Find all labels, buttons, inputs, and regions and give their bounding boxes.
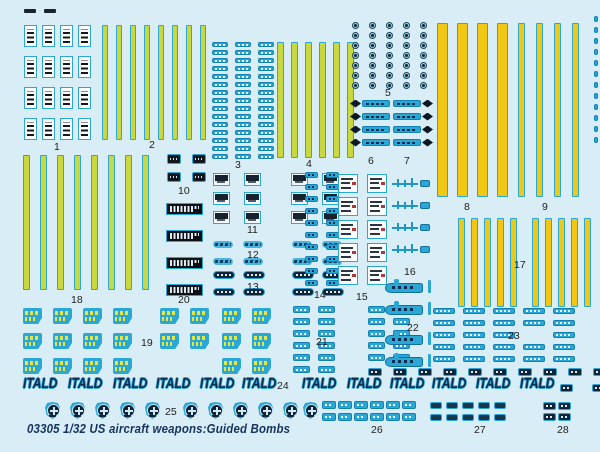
group-27-dashes-decal (430, 414, 442, 421)
group-13-pills-right-decal (292, 288, 314, 296)
group-3-dash-columns-decal (258, 138, 274, 143)
group-5-circle-grid-decal (420, 82, 427, 89)
group-1-stencil-stamps-decal (42, 56, 55, 78)
group-18-stripes-stripe-decal (125, 155, 132, 290)
group-27-dashes-decal (494, 402, 506, 409)
group-3-dash-columns-decal (258, 154, 274, 159)
group-18-stripes-stripe-decal (108, 155, 115, 290)
arrowhead-icon (422, 126, 433, 134)
group-16-decoy-shapes-decal (392, 176, 430, 188)
group-5-circle-grid-decal (352, 42, 359, 49)
group-22-whale-shapes-decal (385, 279, 431, 295)
group-4-stripes-stripe-decal (291, 42, 298, 158)
arrow-bar (393, 139, 421, 146)
group-3-dash-columns-decal (212, 138, 228, 143)
group-26-dashes-decal (386, 413, 400, 421)
group-number-label: 24 (277, 380, 289, 392)
group-5-circle-grid-decal (352, 32, 359, 39)
hoist-roundel-decal (258, 402, 273, 419)
group-19-yellow-stencils-decal (113, 333, 132, 349)
group-14-dash-columns-decal (305, 268, 318, 274)
group-1-stencil-stamps-decal (24, 118, 37, 140)
arrow-bar (393, 100, 421, 107)
group-23-strips-decal (433, 308, 455, 314)
group-3-dash-columns-decal (235, 82, 251, 87)
hoist-roundel-decal (283, 402, 298, 419)
itald-text-decal: ITALD (302, 375, 336, 392)
group-number-label: 1 (54, 141, 60, 153)
group-19-yellow-stencils-decal (190, 308, 209, 324)
group-28-dashes-decal (543, 402, 556, 410)
group-5-circle-grid-decal (403, 42, 410, 49)
group-23-strips-decal (553, 356, 575, 362)
group-3-dash-columns-decal (235, 42, 251, 47)
itald-text-decal: ITALD (432, 375, 466, 392)
group-3-dash-columns-decal (212, 74, 228, 79)
group-number-label: 4 (306, 158, 312, 170)
group-23-strips-decal (433, 332, 455, 338)
arrowhead-icon (350, 126, 361, 134)
group-23-strips-decal (463, 332, 485, 338)
itald-row-end-dashes-decal (592, 384, 600, 392)
group-11-gauges-left-decal (213, 173, 230, 186)
group-5-circle-grid-decal (403, 72, 410, 79)
group-3-dash-columns-decal (212, 42, 228, 47)
group-1-stencil-stamps-decal (42, 25, 55, 47)
group-number-label: 10 (178, 185, 190, 197)
group-5-circle-grid-decal (352, 22, 359, 29)
group-20-data-plates-decal (166, 257, 203, 269)
group-number-label: 14 (314, 289, 326, 301)
group-1-stencil-stamps-decal (60, 56, 73, 78)
group-21-dashes-right-decal (368, 330, 385, 337)
group-9-stripes-stripe-decal (518, 23, 525, 197)
group-27-dashes-decal (478, 402, 490, 409)
group-5-circle-grid-decal (352, 82, 359, 89)
group-11-gauges-left-decal (244, 211, 261, 224)
group-27-dashes-decal (446, 414, 458, 421)
group-3-dash-columns-decal (212, 90, 228, 95)
group-19-yellow-stencils-decal (222, 308, 241, 324)
hoist-roundel-decal (145, 402, 160, 419)
group-28-dashes-decal (543, 413, 556, 421)
group-3-dash-columns-decal (235, 122, 251, 127)
group-number-label: 13 (247, 281, 259, 293)
group-21-dashes-left-decal (318, 306, 335, 313)
group-3-dash-columns-decal (258, 90, 274, 95)
group-4-stripes-stripe-decal (319, 42, 326, 158)
group-number-label: 15 (356, 291, 368, 303)
dark-dash-row-decal (593, 368, 600, 376)
group-19-yellow-stencils-decal (113, 358, 132, 374)
group-5-circle-grid-decal (369, 42, 376, 49)
group-number-label: 19 (141, 337, 153, 349)
group-3-dash-columns-decal (212, 114, 228, 119)
group-3-dash-columns-decal (258, 58, 274, 63)
group-21-dashes-left-decal (293, 318, 310, 325)
group-14-dash-columns-decal (305, 220, 318, 226)
itald-text-decal: ITALD (347, 375, 381, 392)
group-14-dash-columns-decal (305, 172, 318, 178)
group-5-circle-grid-decal (403, 82, 410, 89)
itald-text-decal: ITALD (242, 375, 276, 392)
sheet-caption: 03305 1/32 US aircraft weapons:Guided Bo… (27, 421, 290, 436)
group-21-dashes-left-decal (318, 354, 335, 361)
hoist-roundel-decal (120, 402, 135, 419)
group-27-dashes-decal (446, 402, 458, 409)
edge-dash-line-decal (594, 137, 598, 143)
group-5-circle-grid-decal (369, 82, 376, 89)
group-5-circle-grid-decal (369, 72, 376, 79)
group-27-dashes-decal (430, 402, 442, 409)
itald-text-decal: ITALD (200, 375, 234, 392)
group-10-black-squares-decal (192, 154, 206, 164)
group-number-label: 17 (514, 259, 526, 271)
group-3-dash-columns-decal (235, 130, 251, 135)
group-3-dash-columns-decal (258, 98, 274, 103)
group-19-yellow-stencils-decal (23, 333, 42, 349)
group-19-yellow-stencils-decal (53, 333, 72, 349)
group-23-strips-decal (493, 320, 515, 326)
group-3-dash-columns-decal (235, 74, 251, 79)
group-13-pills-left-decal (213, 288, 235, 296)
group-3-dash-columns-decal (212, 98, 228, 103)
group-19-yellow-stencils-decal (222, 358, 241, 374)
group-3-dash-columns-decal (235, 58, 251, 63)
group-5-circle-grid-decal (403, 32, 410, 39)
group-14-dash-columns-decal (305, 232, 318, 238)
group-number-label: 25 (165, 406, 177, 418)
group-1-stencil-stamps-decal (42, 118, 55, 140)
group-23-strips-decal (463, 320, 485, 326)
group-5-circle-grid-decal (386, 22, 393, 29)
group-23-strips-decal (553, 308, 575, 314)
group-number-label: 2 (149, 139, 155, 151)
group-number-label: 28 (557, 424, 569, 436)
group-21-dashes-left-decal (318, 318, 335, 325)
group-3-dash-columns-decal (258, 74, 274, 79)
group-5-circle-grid-decal (386, 32, 393, 39)
group-number-label: 7 (404, 155, 410, 167)
itald-text-decal: ITALD (113, 375, 147, 392)
group-6-arrows-arrow-decal (350, 112, 390, 121)
group-16-decoy-shapes-decal (392, 198, 430, 210)
group-23-strips-decal (523, 344, 545, 350)
group-5-circle-grid-decal (420, 72, 427, 79)
group-21-dashes-right-decal (368, 306, 385, 313)
arrowhead-icon (350, 113, 361, 121)
group-23-strips-decal (433, 320, 455, 326)
group-5-circle-grid-decal (386, 72, 393, 79)
group-number-label: 11 (247, 224, 258, 236)
group-23-strips-decal (523, 308, 545, 314)
group-1-stencil-stamps-decal (24, 87, 37, 109)
edge-dash-line-decal (594, 49, 598, 55)
group-21-dashes-left-decal (293, 342, 310, 349)
group-15-white-squares-decal (338, 220, 358, 239)
group-27-dashes-decal (462, 414, 474, 421)
group-28-dashes-decal (558, 413, 571, 421)
group-19-yellow-stencils-decal (83, 308, 102, 324)
group-3-dash-columns-decal (212, 58, 228, 63)
group-number-label: 5 (385, 87, 391, 99)
group-3-dash-columns-decal (212, 106, 228, 111)
group-19-yellow-stencils-decal (160, 308, 179, 324)
group-6-arrows-arrow-decal (350, 125, 390, 134)
group-6-arrows-arrow-decal (350, 99, 390, 108)
group-19-yellow-stencils-decal (113, 308, 132, 324)
group-1-stencil-stamps-decal (78, 118, 91, 140)
group-16-decoy-shapes-decal (392, 242, 430, 254)
group-4-stripes-stripe-decal (277, 42, 284, 158)
group-5-circle-grid-decal (403, 52, 410, 59)
group-15-white-squares-decal (367, 197, 387, 216)
dark-dash-row-decal (568, 368, 582, 376)
edge-dash-line-decal (594, 71, 598, 77)
itald-row-end-dashes-decal (560, 384, 573, 392)
decal-sheet: 03305 1/32 US aircraft weapons:Guided Bo… (0, 0, 600, 452)
group-18-stripes-stripe-decal (91, 155, 98, 290)
group-23-strips-decal (463, 308, 485, 314)
group-15-white-squares-decal (338, 197, 358, 216)
group-15-white-squares-decal (338, 243, 358, 262)
group-23-strips-decal (523, 356, 545, 362)
group-26-dashes-decal (322, 401, 336, 409)
group-10-black-squares-decal (167, 154, 181, 164)
group-20-data-plates-decal (166, 230, 203, 242)
group-14-dash-columns-decal (305, 256, 318, 262)
hoist-roundel-decal (208, 402, 223, 419)
group-14-dash-columns-decal (305, 280, 318, 286)
group-5-circle-grid-decal (352, 62, 359, 69)
group-5-circle-grid-decal (386, 42, 393, 49)
group-3-dash-columns-decal (258, 130, 274, 135)
edge-dash-line-decal (594, 104, 598, 110)
group-3-dash-columns-decal (235, 50, 251, 55)
group-number-label: 22 (407, 322, 419, 334)
group-9-stripes-stripe-decal (572, 23, 579, 197)
group-27-dashes-decal (494, 414, 506, 421)
group-4-stripes-stripe-decal (333, 42, 340, 158)
itald-text-decal: ITALD (390, 375, 424, 392)
group-5-circle-grid-decal (369, 32, 376, 39)
group-17-stripes-right-stripe-decal (545, 218, 552, 307)
group-1-stencil-stamps-decal (78, 56, 91, 78)
group-3-dash-columns-decal (258, 42, 274, 47)
group-5-circle-grid-decal (352, 52, 359, 59)
group-12-script-left-decal (212, 241, 233, 248)
group-1-stencil-stamps-decal (78, 25, 91, 47)
group-19-yellow-stencils-decal (190, 333, 209, 349)
edge-dash-line-decal (594, 126, 598, 132)
group-5-circle-grid-decal (386, 62, 393, 69)
itald-text-decal: ITALD (156, 375, 190, 392)
group-18-stripes-stripe-decal (40, 155, 47, 290)
group-14-dash-columns-decal (305, 208, 318, 214)
hoist-roundel-decal (95, 402, 110, 419)
group-7-arrows-arrow-decal (393, 99, 433, 108)
arrowhead-icon (422, 113, 433, 121)
group-21-dashes-right-decal (368, 318, 385, 325)
edge-dash-line-decal (594, 82, 598, 88)
group-19-yellow-stencils-decal (252, 308, 271, 324)
group-5-circle-grid-decal (369, 52, 376, 59)
group-number-label: 9 (542, 201, 548, 213)
group-23-strips-decal (493, 308, 515, 314)
edge-dash-line-decal (594, 27, 598, 33)
group-3-dash-columns-decal (235, 66, 251, 71)
group-17-stripes-right-stripe-decal (584, 218, 591, 307)
arrow-bar (362, 126, 390, 133)
group-17-stripes-left-stripe-decal (471, 218, 478, 307)
edge-dash-line-decal (594, 93, 598, 99)
group-18-stripes-stripe-decal (23, 155, 30, 290)
group-8-stripes-stripe-decal (497, 23, 508, 197)
group-23-strips-decal (493, 344, 515, 350)
group-8-stripes-stripe-decal (477, 23, 488, 197)
arrowhead-icon (422, 100, 433, 108)
group-17-stripes-right-stripe-decal (558, 218, 565, 307)
group-3-dash-columns-decal (258, 106, 274, 111)
arrowhead-icon (422, 139, 433, 147)
group-number-label: 12 (247, 249, 259, 261)
group-21-dashes-left-decal (293, 330, 310, 337)
group-3-dash-columns-decal (258, 66, 274, 71)
group-19-yellow-stencils-decal (53, 308, 72, 324)
group-3-dash-columns-decal (258, 50, 274, 55)
group-26-dashes-decal (354, 413, 368, 421)
group-23-strips-decal (433, 344, 455, 350)
group-7-arrows-arrow-decal (393, 112, 433, 121)
arrow-bar (362, 100, 390, 107)
group-number-label: 26 (371, 424, 383, 436)
group-22-whale-shapes-decal (385, 301, 431, 317)
group-2-stripes-stripe-decal (116, 25, 122, 140)
group-8-stripes-stripe-decal (457, 23, 468, 197)
group-5-circle-grid-decal (369, 22, 376, 29)
group-26-dashes-decal (402, 401, 416, 409)
hoist-roundel-decal (303, 402, 318, 419)
group-number-label: 20 (178, 294, 190, 306)
group-2-stripes-stripe-decal (158, 25, 164, 140)
group-2-stripes-stripe-decal (144, 25, 150, 140)
arrow-bar (393, 126, 421, 133)
group-13-pills-left-decal (213, 271, 235, 279)
group-21-dashes-left-decal (293, 306, 310, 313)
group-23-strips-decal (523, 320, 545, 326)
arrow-bar (393, 113, 421, 120)
group-23-strips-decal (553, 320, 575, 326)
itald-text-decal: ITALD (68, 375, 102, 392)
group-10-black-squares-decal (192, 172, 206, 182)
group-number-label: 3 (235, 159, 241, 171)
group-number-label: 23 (508, 330, 520, 342)
group-3-dash-columns-decal (212, 154, 228, 159)
edge-dash-line-decal (594, 16, 598, 22)
group-3-dash-columns-decal (235, 98, 251, 103)
group-number-label: 18 (71, 294, 83, 306)
group-26-dashes-decal (370, 401, 384, 409)
group-15-white-squares-decal (367, 174, 387, 193)
group-17-stripes-right-stripe-decal (571, 218, 578, 307)
group-26-dashes-decal (370, 413, 384, 421)
group-23-strips-decal (553, 344, 575, 350)
group-3-dash-columns-decal (235, 114, 251, 119)
edge-dash-line-decal (594, 38, 598, 44)
group-3-dash-columns-decal (258, 82, 274, 87)
group-3-dash-columns-decal (212, 122, 228, 127)
group-5-circle-grid-decal (420, 32, 427, 39)
group-22-whale-shapes-decal (385, 353, 431, 369)
group-7-arrows-arrow-decal (393, 125, 433, 134)
group-15-white-squares-decal (338, 266, 358, 285)
group-5-circle-grid-decal (420, 52, 427, 59)
group-number-label: 6 (368, 155, 374, 167)
group-19-yellow-stencils-decal (23, 308, 42, 324)
group-3-dash-columns-decal (212, 82, 228, 87)
group-5-circle-grid-decal (420, 42, 427, 49)
group-number-label: 21 (316, 336, 328, 348)
group-19-yellow-stencils-decal (23, 358, 42, 374)
group-3-dash-columns-decal (258, 114, 274, 119)
arrow-bar (362, 139, 390, 146)
group-5-circle-grid-decal (403, 22, 410, 29)
group-26-dashes-decal (322, 413, 336, 421)
group-8-stripes-stripe-decal (437, 23, 448, 197)
group-21-dashes-left-decal (293, 366, 310, 373)
group-9-stripes-stripe-decal (554, 23, 561, 197)
group-10-black-squares-decal (167, 172, 181, 182)
group-19-yellow-stencils-decal (83, 333, 102, 349)
arrowhead-icon (350, 139, 361, 147)
group-21-dashes-left-decal (293, 354, 310, 361)
group-20-data-plates-decal (166, 203, 203, 215)
hoist-roundel-decal (183, 402, 198, 419)
group-12-script-left-decal (212, 258, 233, 265)
group-5-circle-grid-decal (352, 72, 359, 79)
group-2-stripes-stripe-decal (130, 25, 136, 140)
group-1-stencil-stamps-decal (42, 87, 55, 109)
group-26-dashes-decal (338, 413, 352, 421)
group-1-stencil-stamps-decal (24, 25, 37, 47)
itald-text-decal: ITALD (23, 375, 57, 392)
group-21-dashes-right-decal (368, 354, 385, 361)
group-21-dashes-right-decal (368, 342, 385, 349)
group-3-dash-columns-decal (212, 146, 228, 151)
hoist-roundel-decal (45, 402, 60, 419)
group-19-yellow-stencils-decal (83, 358, 102, 374)
group-5-circle-grid-decal (420, 22, 427, 29)
group-3-dash-columns-decal (212, 66, 228, 71)
group-2-stripes-stripe-decal (200, 25, 206, 140)
group-17-stripes-right-stripe-decal (532, 218, 539, 307)
group-11-gauges-left-decal (213, 211, 230, 224)
group-28-dashes-decal (558, 402, 571, 410)
group-11-gauges-left-decal (244, 192, 261, 205)
group-16-decoy-shapes-decal (392, 220, 430, 232)
group-2-stripes-stripe-decal (102, 25, 108, 140)
group-15-white-squares-decal (367, 220, 387, 239)
group-19-yellow-stencils-decal (252, 333, 271, 349)
group-3-dash-columns-decal (258, 122, 274, 127)
group-3-dash-columns-decal (258, 146, 274, 151)
group-3-dash-columns-decal (235, 138, 251, 143)
group-number-label: 16 (404, 266, 416, 278)
edge-dash-line-decal (594, 60, 598, 66)
group-26-dashes-decal (402, 413, 416, 421)
group-19-yellow-stencils-decal (252, 358, 271, 374)
group-23-strips-decal (553, 332, 575, 338)
